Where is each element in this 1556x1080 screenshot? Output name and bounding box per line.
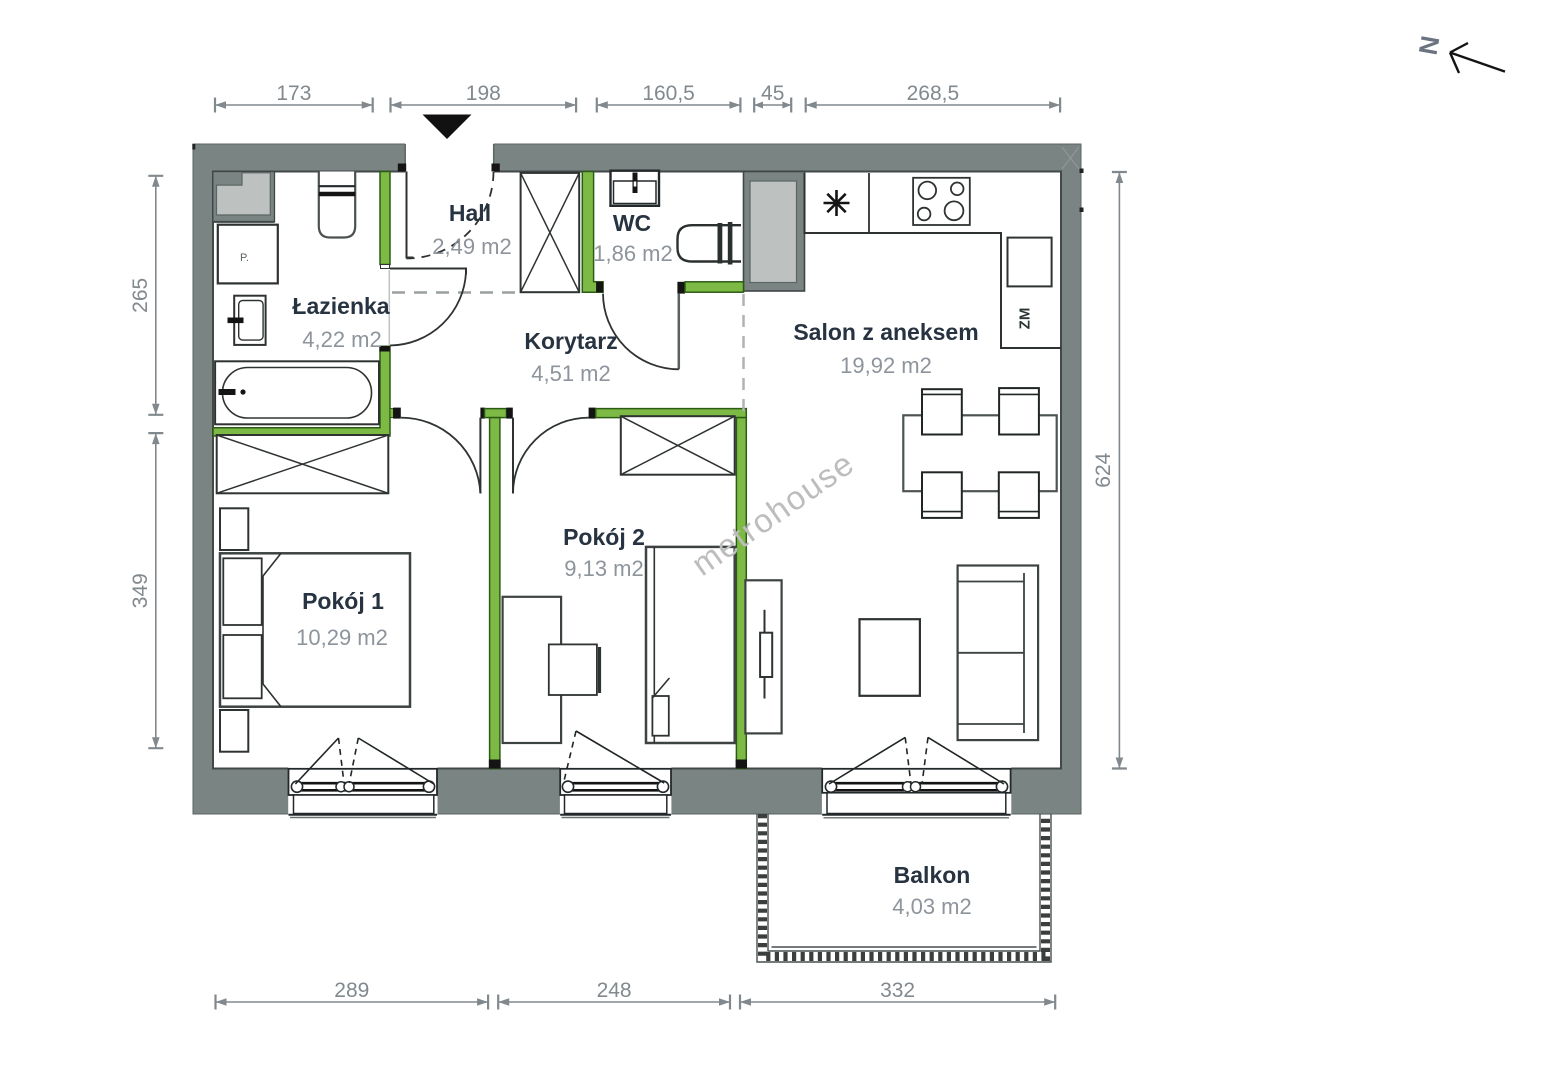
svg-text:N: N: [1413, 33, 1446, 57]
svg-text:160,5: 160,5: [642, 82, 695, 105]
svg-text:10,29 m2: 10,29 m2: [296, 625, 388, 650]
svg-text:624: 624: [1092, 452, 1115, 487]
svg-text:4,51 m2: 4,51 m2: [531, 361, 611, 386]
svg-text:349: 349: [129, 573, 152, 608]
svg-text:173: 173: [276, 82, 311, 105]
svg-text:Pokój 1: Pokój 1: [302, 588, 384, 614]
svg-text:45: 45: [761, 82, 784, 105]
svg-text:268,5: 268,5: [907, 82, 960, 105]
svg-text:WC: WC: [613, 210, 651, 236]
svg-text:198: 198: [466, 82, 501, 105]
svg-text:2,49 m2: 2,49 m2: [432, 234, 512, 259]
svg-text:Łazienka: Łazienka: [292, 293, 389, 319]
svg-text:19,92 m2: 19,92 m2: [840, 353, 932, 378]
svg-text:Pokój 2: Pokój 2: [563, 524, 645, 550]
svg-text:265: 265: [129, 278, 152, 313]
svg-text:Salon z aneksem: Salon z aneksem: [793, 319, 978, 345]
svg-text:ZM: ZM: [1017, 308, 1034, 330]
svg-text:Korytarz: Korytarz: [524, 328, 617, 354]
svg-text:P.: P.: [240, 252, 249, 264]
svg-text:289: 289: [334, 979, 369, 1002]
svg-text:4,03 m2: 4,03 m2: [892, 894, 972, 919]
svg-text:332: 332: [880, 979, 915, 1002]
svg-text:Balkon: Balkon: [894, 862, 971, 888]
svg-text:Hall: Hall: [449, 200, 491, 226]
svg-text:1,86 m2: 1,86 m2: [593, 241, 673, 266]
svg-text:9,13 m2: 9,13 m2: [564, 556, 644, 581]
svg-text:248: 248: [597, 979, 632, 1002]
svg-text:4,22 m2: 4,22 m2: [302, 327, 382, 352]
